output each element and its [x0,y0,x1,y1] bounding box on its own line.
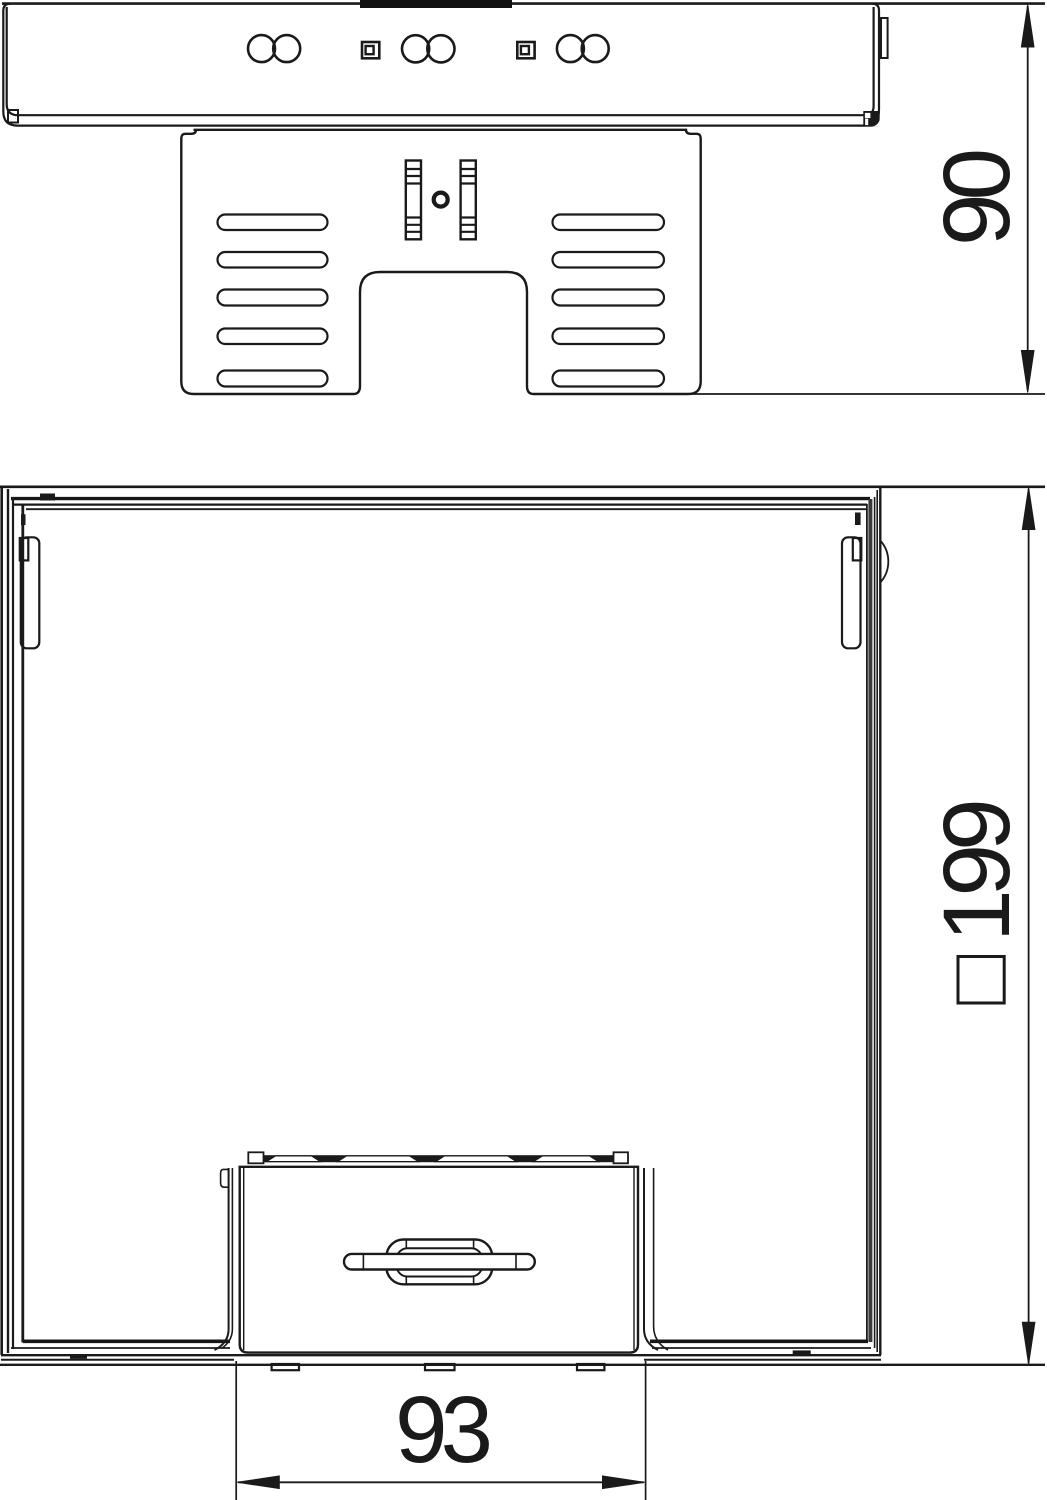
svg-text:93: 93 [395,1377,490,1483]
svg-text:199: 199 [924,802,1030,942]
svg-text:90: 90 [924,151,1030,246]
